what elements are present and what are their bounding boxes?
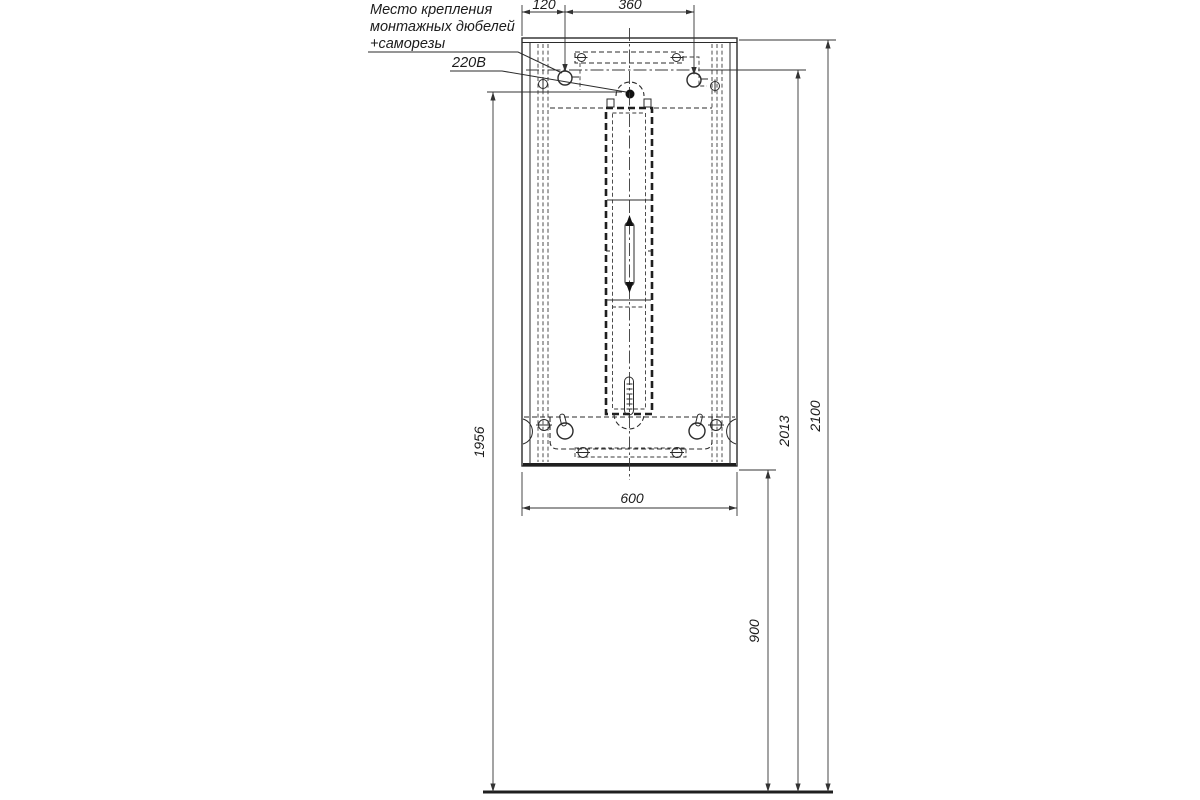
dim-label-1956: 1956 [471,426,487,457]
cabinet-installation-drawing: 120 360 1956 2013 2100 900 [0,0,1200,800]
dimension-600: 600 [522,472,737,516]
dim-label-900: 900 [746,619,762,643]
hidden-edge-lines-left [538,44,548,462]
dim-label-600: 600 [620,490,644,506]
dimension-900: 900 [739,470,776,792]
technical-drawing-canvas: 120 360 1956 2013 2100 900 [0,0,1200,800]
cable-channel-inner [613,113,646,409]
mounting-note-line3: +саморезы [370,36,445,52]
dim-label-2100: 2100 [807,400,823,432]
channel-clip-right-icon [644,99,651,107]
keyhole-left-icon [557,414,573,439]
dimension-1956: 1956 [471,92,622,792]
top-mounting-rail [575,52,707,90]
dim-label-2013: 2013 [776,415,792,447]
power-label: 220В [451,55,486,71]
cable-slot [625,377,634,415]
mounting-note-line2: монтажных дюбелей [370,19,515,35]
mounting-note-line1: Место крепления [370,2,492,18]
mounting-dowel-right [687,73,708,87]
channel-clip-left-icon [607,99,614,107]
dimension-2013: 2013 [700,70,806,792]
side-hole-left [523,419,532,444]
keyhole-right-icon [689,414,705,439]
hidden-edge-lines-right [712,44,722,462]
side-hole-right [727,419,736,444]
channel-bottom-arc [614,414,644,429]
dim-label-360: 360 [618,0,642,12]
power-connection-dot [626,90,635,99]
dim-label-120: 120 [532,0,556,12]
wall-screw-left-icon [539,78,548,91]
